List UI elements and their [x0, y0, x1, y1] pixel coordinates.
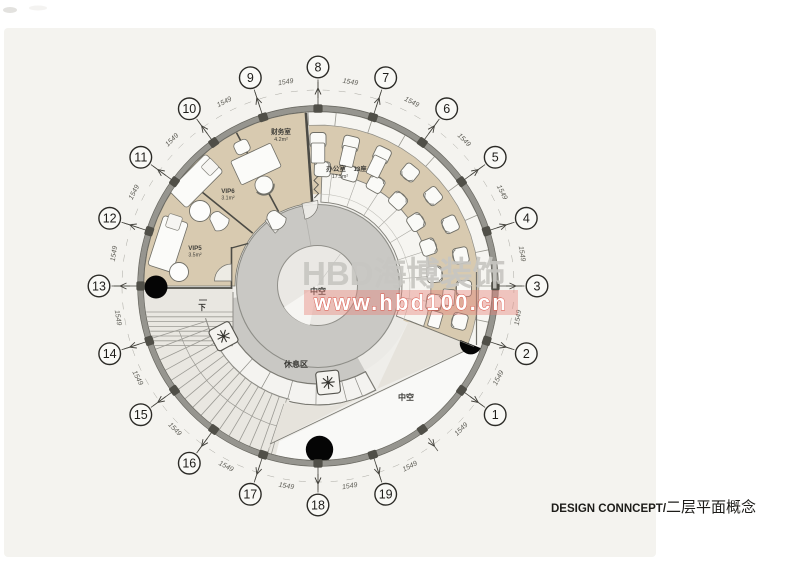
svg-text:8: 8 — [315, 60, 322, 74]
svg-text:财务室: 财务室 — [270, 127, 291, 136]
svg-text:16: 16 — [182, 457, 196, 471]
svg-text:10: 10 — [182, 102, 196, 116]
svg-text:VIP5: VIP5 — [188, 245, 202, 252]
svg-text:17: 17 — [243, 488, 257, 502]
svg-text:休息区: 休息区 — [283, 359, 308, 369]
svg-text:9: 9 — [247, 71, 254, 85]
svg-text:17.5m²: 17.5m² — [332, 174, 348, 180]
svg-text:12: 12 — [103, 212, 117, 226]
svg-text:4: 4 — [523, 212, 530, 226]
svg-text:13座: 13座 — [353, 165, 367, 173]
svg-text:办公室: 办公室 — [326, 164, 346, 173]
svg-text:13: 13 — [92, 279, 106, 293]
svg-text:5: 5 — [492, 151, 499, 165]
svg-text:2: 2 — [523, 347, 530, 361]
svg-text:4.2m²: 4.2m² — [274, 137, 288, 143]
svg-text:7: 7 — [382, 71, 389, 85]
svg-text:15: 15 — [134, 408, 148, 422]
svg-text:3.5m²: 3.5m² — [188, 253, 202, 259]
svg-text:下: 下 — [198, 303, 206, 312]
svg-text:www.hbd100.cn: www.hbd100.cn — [313, 290, 508, 315]
svg-text:6: 6 — [443, 102, 450, 116]
svg-text:11: 11 — [134, 151, 147, 165]
svg-text:19: 19 — [379, 488, 393, 502]
svg-text:18: 18 — [311, 498, 325, 512]
svg-text:3: 3 — [534, 279, 541, 293]
svg-text:14: 14 — [103, 347, 117, 361]
svg-text:3.1m²: 3.1m² — [221, 196, 235, 202]
svg-text:中空: 中空 — [398, 392, 414, 402]
svg-text:VIP6: VIP6 — [221, 188, 235, 195]
svg-text:HBD海博装饰: HBD海博装饰 — [302, 255, 506, 292]
svg-text:1: 1 — [492, 408, 499, 422]
